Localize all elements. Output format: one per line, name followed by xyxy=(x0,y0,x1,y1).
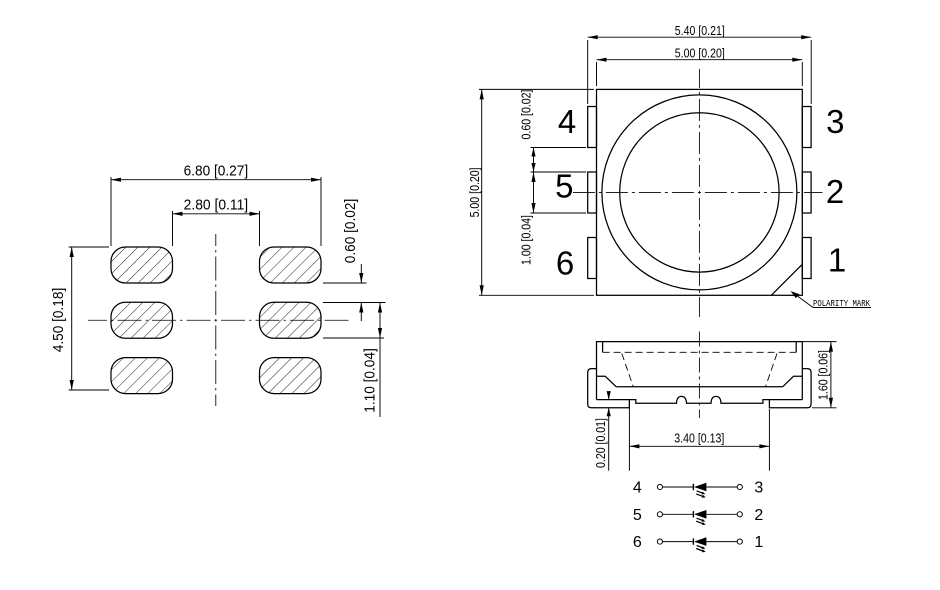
svg-text:5: 5 xyxy=(555,168,573,205)
svg-text:5.00 [0.20]: 5.00 [0.20] xyxy=(675,45,725,60)
svg-text:6: 6 xyxy=(633,534,642,551)
svg-text:5.40 [0.21]: 5.40 [0.21] xyxy=(675,23,725,38)
svg-text:6.80 [0.27]: 6.80 [0.27] xyxy=(184,163,249,180)
svg-text:1.00 [0.04]: 1.00 [0.04] xyxy=(519,215,534,265)
svg-text:POLARITY MARK: POLARITY MARK xyxy=(813,299,870,309)
svg-text:3: 3 xyxy=(754,480,763,497)
svg-text:3: 3 xyxy=(826,103,844,140)
svg-text:2.80 [0.11]: 2.80 [0.11] xyxy=(184,196,249,213)
svg-text:1.10 [0.04]: 1.10 [0.04] xyxy=(361,348,378,413)
svg-text:1.60 [0.06]: 1.60 [0.06] xyxy=(816,350,831,400)
svg-text:4: 4 xyxy=(633,480,642,497)
svg-text:5: 5 xyxy=(633,507,642,524)
svg-text:1: 1 xyxy=(754,534,763,551)
svg-text:4: 4 xyxy=(558,103,576,140)
svg-text:6: 6 xyxy=(556,245,574,282)
svg-text:0.20 [0.01]: 0.20 [0.01] xyxy=(593,418,608,468)
svg-text:0.60 [0.02]: 0.60 [0.02] xyxy=(342,199,359,264)
svg-text:0.60 [0.02]: 0.60 [0.02] xyxy=(519,90,534,140)
svg-text:5.00 [0.20]: 5.00 [0.20] xyxy=(467,167,482,217)
svg-text:2: 2 xyxy=(826,173,844,210)
svg-text:4.50 [0.18]: 4.50 [0.18] xyxy=(50,288,67,353)
svg-text:3.40 [0.13]: 3.40 [0.13] xyxy=(674,431,724,446)
svg-text:1: 1 xyxy=(828,242,846,279)
svg-text:2: 2 xyxy=(754,507,763,524)
